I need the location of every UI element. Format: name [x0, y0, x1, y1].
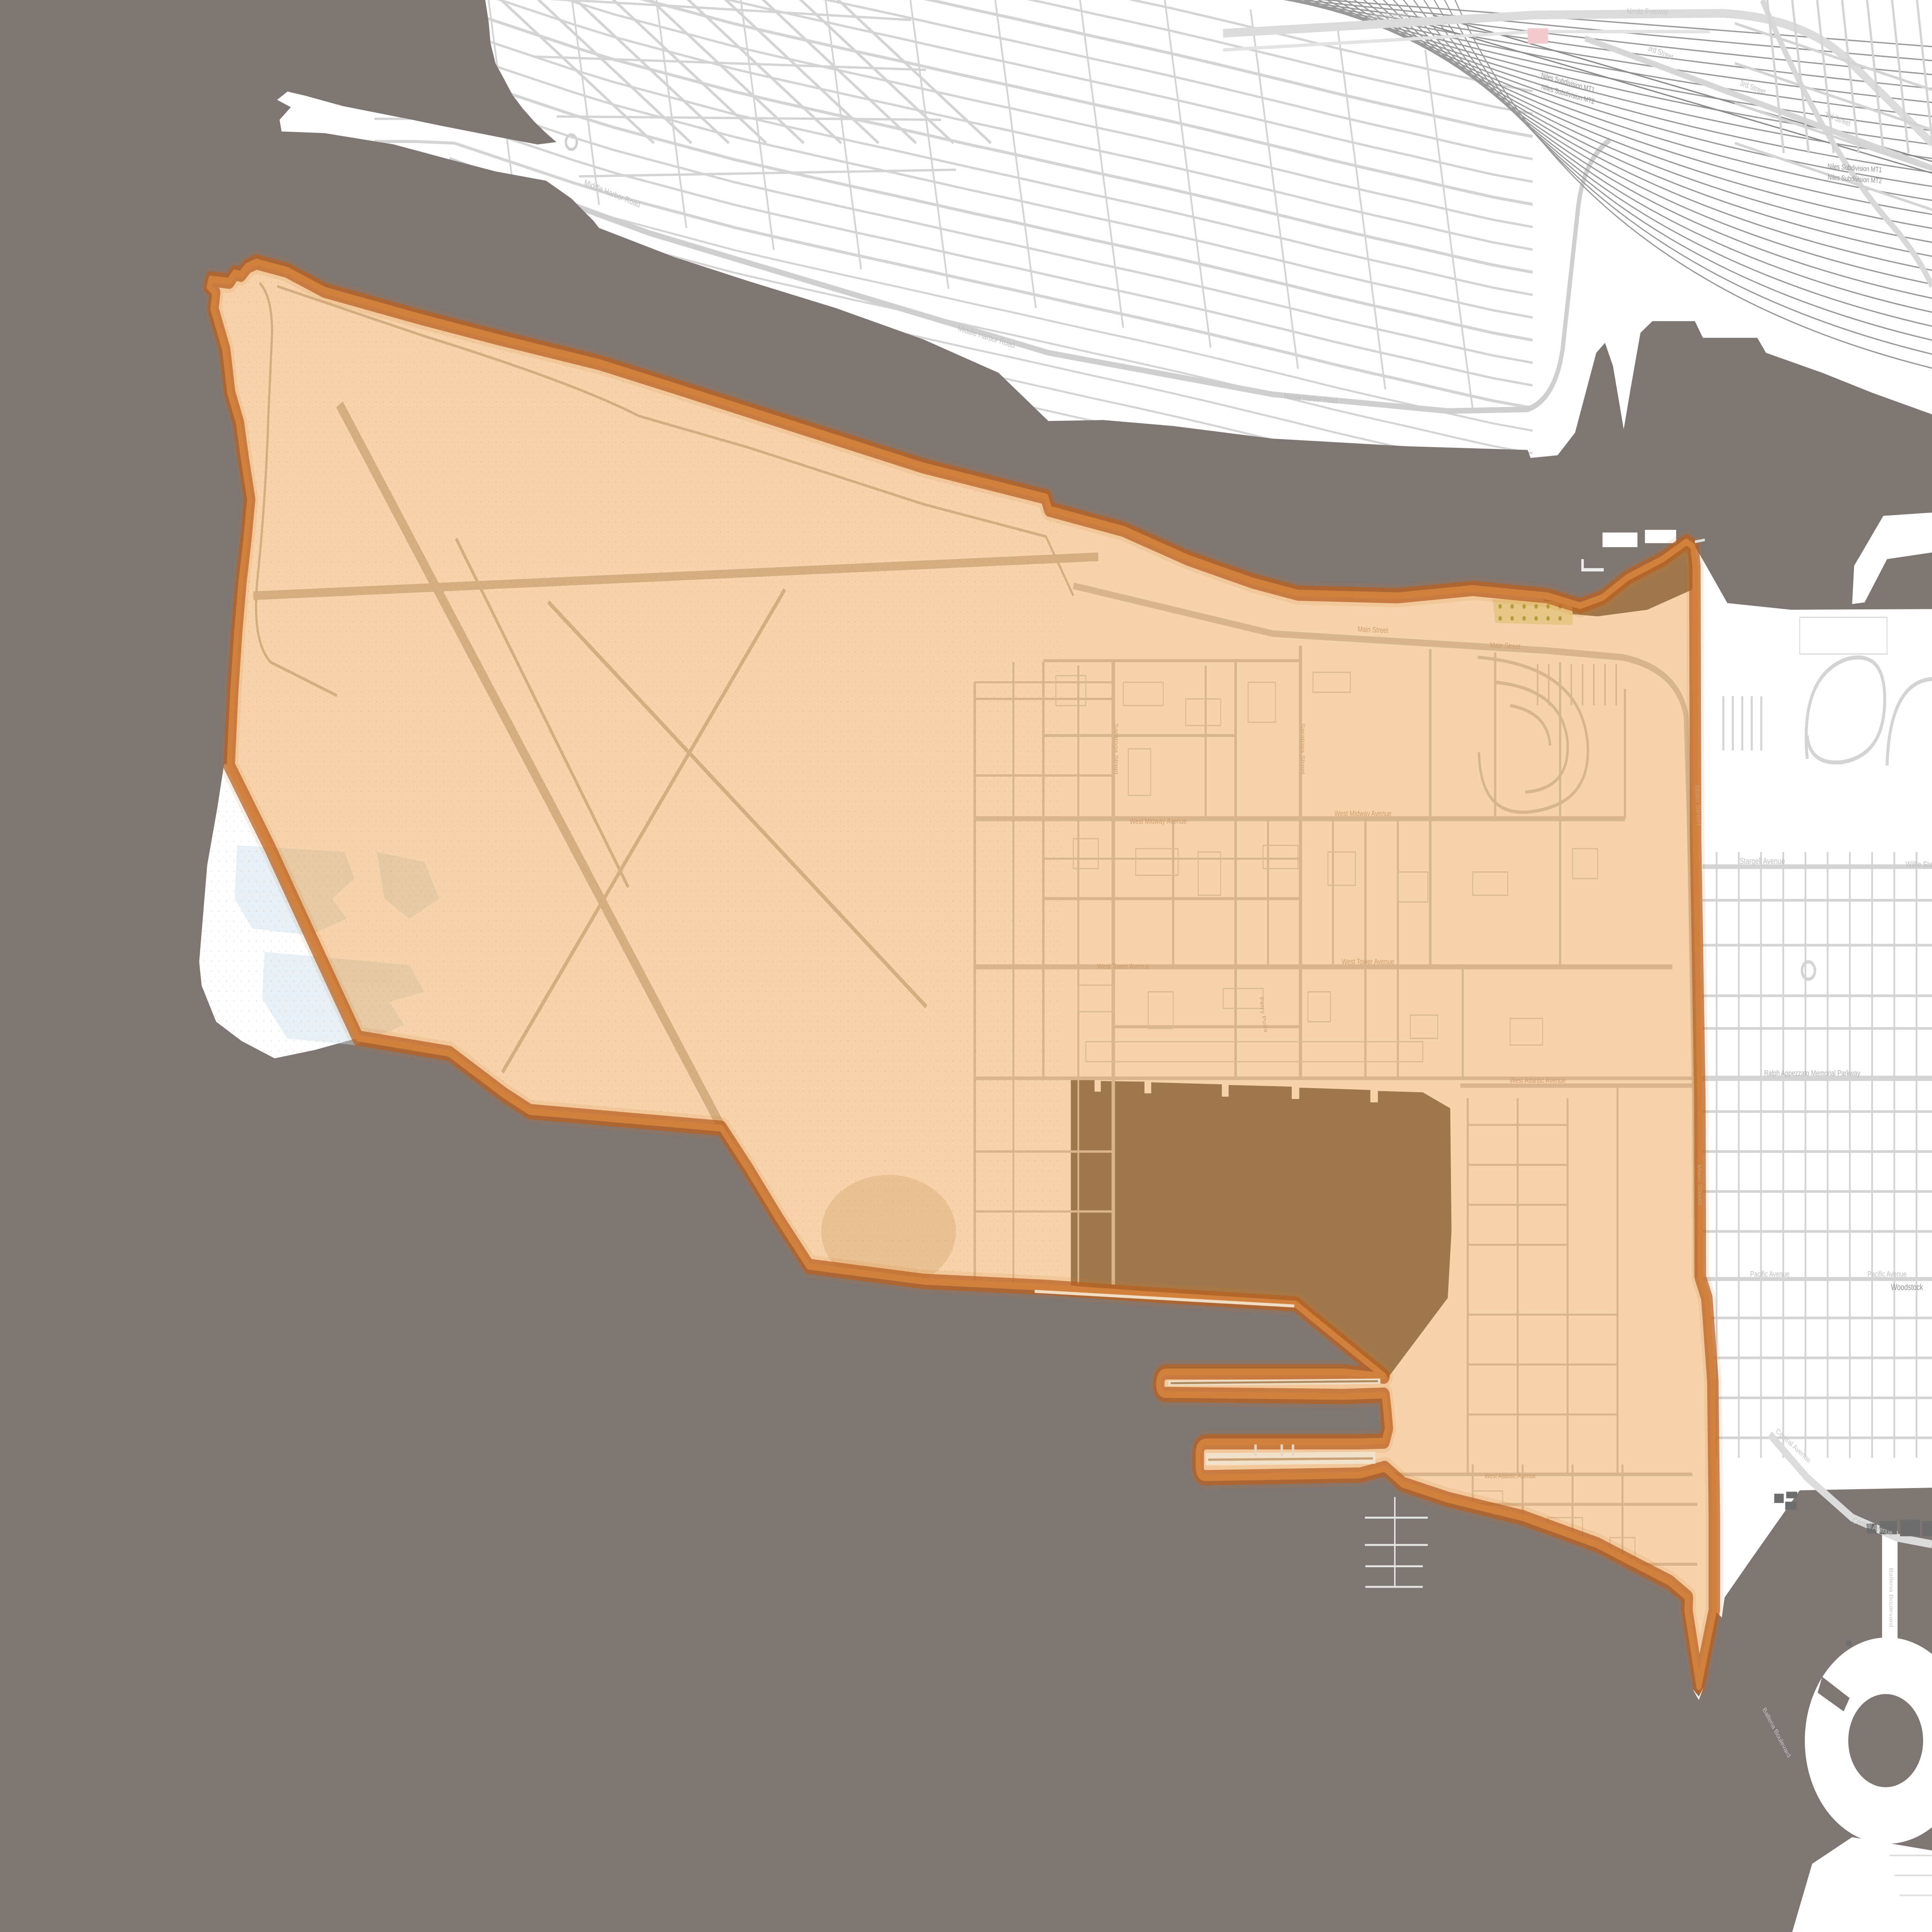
svg-text:West Tower Avenue: West Tower Avenue [1342, 957, 1394, 966]
svg-text:Stargell Avenue: Stargell Avenue [1740, 857, 1785, 866]
svg-text:West Atlantic Avenue: West Atlantic Avenue [1485, 1472, 1536, 1480]
svg-text:West Midway Avenue: West Midway Avenue [1130, 816, 1187, 826]
svg-text:Pacific Avenue: Pacific Avenue [1867, 1269, 1906, 1279]
svg-text:West Midway Avenue: West Midway Avenue [1334, 809, 1391, 818]
svg-text:West Tower Avenue: West Tower Avenue [1097, 962, 1150, 971]
svg-text:Saratoga Street: Saratoga Street [1113, 723, 1119, 775]
svg-text:Main Street: Main Street [1357, 624, 1388, 634]
svg-text:Saratoga Street: Saratoga Street [1300, 723, 1306, 775]
svg-text:Nimitz Freeway: Nimitz Freeway [1627, 7, 1668, 16]
svg-text:Willie Starg: Willie Starg [1906, 860, 1932, 869]
svg-text:Woodstock: Woodstock [1891, 1282, 1923, 1292]
svg-text:Main Street: Main Street [1696, 1164, 1704, 1205]
svg-text:West Atlantic Avenue: West Atlantic Avenue [1510, 1076, 1566, 1085]
svg-text:Ralph Appezzato Memorial Parkw: Ralph Appezzato Memorial Parkway [1764, 1068, 1861, 1078]
svg-text:Ballena Boulevard: Ballena Boulevard [1888, 1568, 1895, 1628]
svg-text:Main Street: Main Street [1490, 640, 1521, 651]
svg-text:Pacific Avenue: Pacific Avenue [1750, 1269, 1789, 1279]
